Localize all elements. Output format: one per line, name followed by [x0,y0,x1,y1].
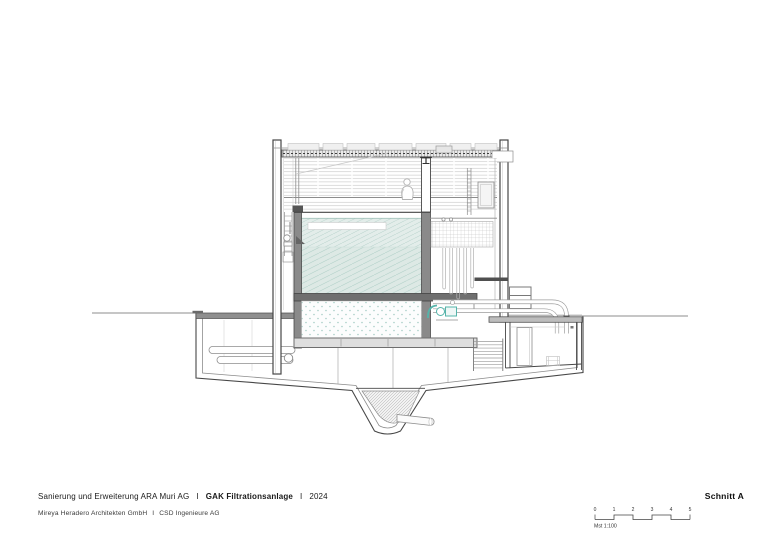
rooftop-unit [436,146,452,153]
scale-label: Mst 1:100 [594,524,617,530]
roof-duct [420,157,432,212]
funnel-outlet-pipe [397,415,434,426]
wall-hydrant [284,222,292,246]
louver-cladding [284,158,497,212]
column-right [500,140,508,322]
engineer-name: CSD Ingenieure AG [159,510,219,517]
scale-tick-1: 1 [613,507,616,513]
scale-tick-5: 5 [689,507,692,513]
basement-left [193,311,302,372]
exterior-railing [510,287,532,311]
drawing-sheet: 0 1 2 3 4 5 Mst 1:100 Sanierung und Erwe… [0,0,780,552]
basement-table [547,357,560,366]
scale-tick-0: 0 [594,507,597,513]
stairs [474,339,503,372]
separator: I [196,492,198,501]
scale-bar: 0 1 2 3 4 5 Mst 1:100 [594,507,692,530]
scale-tick-3: 3 [651,507,654,513]
filter-gravel-layer [302,301,422,338]
drawing-title: Schnitt A [705,491,744,501]
architect-name: Mireya Heradero Architekten GmbH [38,510,147,517]
project-name: Sanierung und Erweiterung ARA Muri AG [38,492,189,501]
access-ladder-left [285,212,293,256]
filter-basin [301,218,422,294]
project-year: 2024 [309,492,327,501]
titleblock-line1: Sanierung und Erweiterung ARA Muri AGIGA… [38,492,328,501]
landing-beam [475,278,509,282]
cellar-partitions [338,348,448,388]
separator: I [152,510,154,517]
pipe-end-circle [284,354,292,362]
section-drawing: 0 1 2 3 4 5 Mst 1:100 [0,0,780,552]
separator: I [300,492,302,501]
column-left [273,140,281,374]
water-lower-zone [301,247,422,294]
lower-slab [294,338,477,348]
scale-tick-2: 2 [632,507,635,513]
drawing-subject: GAK Filtrationsanlage [206,492,293,501]
tile-grid [431,222,493,248]
titleblock-line2: Mireya Heradero Architekten GmbHICSD Ing… [38,510,220,517]
hanging-tubes [443,248,474,299]
ground-line-right [508,315,688,316]
launder-channel [308,223,386,230]
scale-tick-4: 4 [670,507,673,513]
